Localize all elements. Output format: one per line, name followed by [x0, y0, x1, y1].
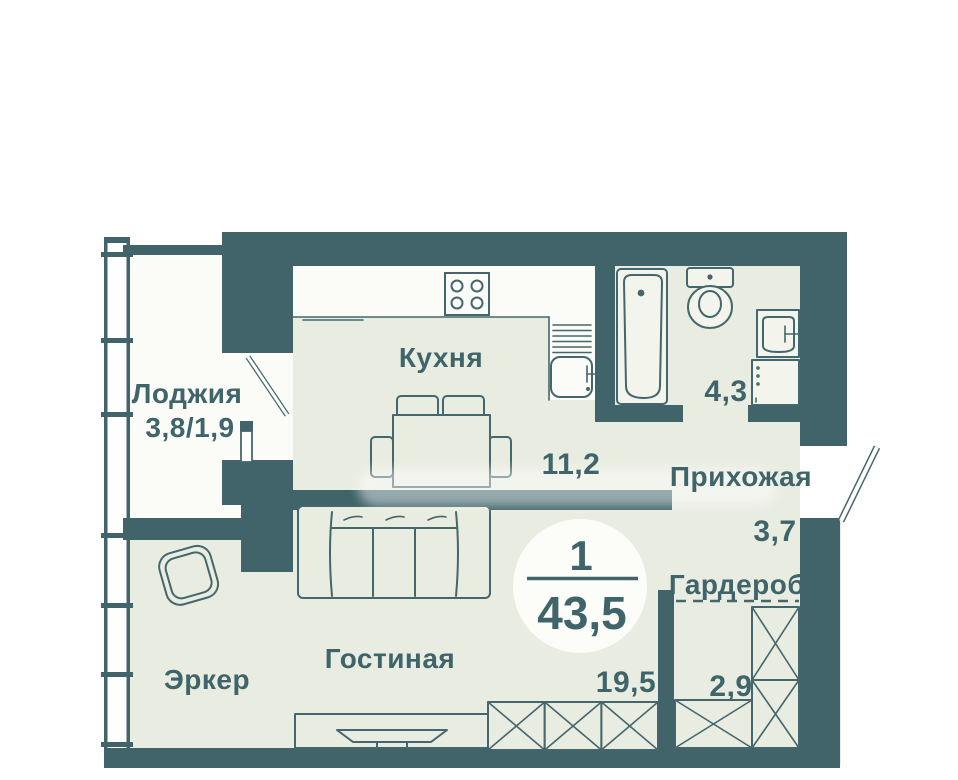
floor-plan: 1 43,5 Лоджия 3,8/1,9 Кухня 11,2 4,3 При… — [0, 0, 958, 780]
washing-machine-icon — [752, 360, 799, 405]
wall-top — [222, 232, 847, 266]
loggia-area: 3,8/1,9 — [145, 412, 234, 443]
unit-total-area: 43,5 — [537, 587, 627, 639]
bathtub-icon — [617, 269, 667, 404]
living-room-label: Гостиная — [325, 643, 456, 674]
unit-rooms-count: 1 — [569, 532, 592, 579]
kitchen-area: 11,2 — [542, 448, 601, 481]
wall-kitchen-bath — [595, 266, 615, 422]
unit-info-badge: 1 43,5 — [513, 519, 647, 653]
toilet-icon — [687, 268, 733, 328]
sofa-icon — [298, 506, 490, 598]
living-room-area: 19,5 — [596, 666, 656, 699]
wardrobe-label: Гардероб — [669, 569, 805, 600]
wall-loggia-bay-divider — [123, 518, 241, 540]
washbasin-icon — [757, 310, 799, 357]
wall-bath-bottom-left — [595, 405, 683, 422]
wall-right-lower — [800, 518, 840, 768]
floor-plan-drawing: 1 43,5 Лоджия 3,8/1,9 Кухня 11,2 4,3 При… — [0, 0, 958, 780]
wall-living-wardrobe — [658, 590, 674, 748]
hallway-area: 3,7 — [753, 515, 796, 548]
bay-window-label: Эркер — [164, 664, 250, 695]
wall-loggia-corner — [222, 232, 293, 353]
window-wall — [101, 237, 133, 748]
kitchen-label: Кухня — [399, 342, 483, 373]
tv-stand-icon — [295, 714, 488, 748]
loggia-label: Лоджия — [132, 378, 243, 409]
stove-icon — [445, 273, 489, 315]
wall-loggia-top — [123, 245, 222, 255]
bathroom-area: 4,3 — [704, 375, 747, 408]
window-frame-cap — [104, 237, 130, 243]
hallway-label: Прихожая — [670, 461, 812, 492]
wall-bath-bottom-right — [748, 405, 800, 422]
wardrobe-area: 2,9 — [709, 670, 752, 703]
wall-bay-corner — [241, 460, 293, 572]
fridge-icon — [303, 273, 363, 320]
wall-bottom — [104, 748, 840, 768]
wall-right-upper — [800, 232, 847, 446]
closet-hatch-living — [488, 702, 658, 750]
